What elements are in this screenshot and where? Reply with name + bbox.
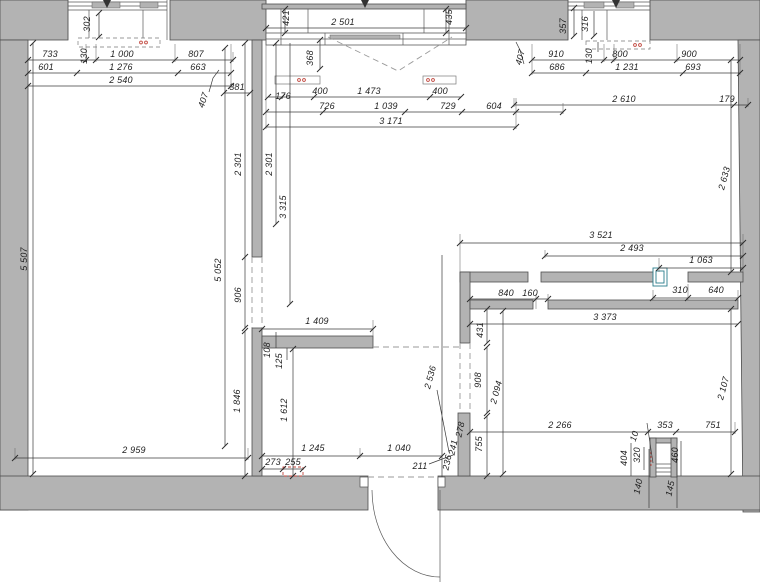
dim-label: 733 [42,49,58,59]
dim-label: 2 094 [488,380,504,406]
dim-label: 906 [233,287,243,303]
dim-label: 273 [264,457,281,467]
dim-label: 751 [705,420,721,430]
dim-label: 400 [312,86,328,96]
partition-horizontal-center [262,336,373,348]
wall-top-right-pier [650,0,760,40]
dim-label: 1 276 [109,62,133,72]
dim-label: 2 301 [233,152,243,177]
dim-label: 729 [440,101,456,111]
dim-label: 130 [584,48,594,64]
radiator-icon [586,41,650,49]
dim-label: 381 [229,82,245,92]
entrance-jamb-right [438,477,445,487]
radiator-icon [423,76,456,84]
dim-label: 1 846 [232,389,242,413]
dim-label: 663 [190,62,206,72]
dim-label: 5 507 [19,246,29,270]
dim-label: 640 [708,285,724,295]
dim-label: 357 [558,17,568,33]
dim-label: 807 [188,49,204,59]
dim-label: 236 [440,454,453,472]
partition-corridor-c [688,272,743,282]
dim-label: 601 [38,62,54,72]
dimension-labels: 3027331301 0008076011 2766632 5404073814… [19,8,735,497]
dim-label: 431 [475,322,485,338]
partition-vertical-lower [252,328,262,476]
dim-label: 407 [513,48,527,66]
dim-label: 5 052 [213,258,223,282]
wall-top-pier-3 [466,0,568,40]
dim-label: 176 [275,91,291,101]
dim-label: 241 [446,439,459,457]
dim-label: 320 [632,447,642,463]
wall-top-left-pier [0,0,68,40]
floor-plan-canvas: 3027331301 0008076011 2766632 5404073814… [0,0,760,582]
wall-left [0,40,28,510]
dim-label: 2 536 [422,365,438,391]
wall-bottom-right [438,476,760,510]
dim-label: 310 [672,285,688,295]
balcony-sliding-panel [330,35,400,39]
partition-corridor-b [541,272,655,282]
dim-label: 10 [628,430,641,443]
balcony [262,0,466,45]
dim-label: 686 [549,62,565,72]
dim-label: 108 [262,342,272,358]
dim-label: 800 [612,49,628,59]
entrance-door [372,490,440,582]
partition-left-upper [460,272,470,343]
dim-label: 435 [444,8,454,24]
dim-label: 125 [274,352,284,368]
floor-plan-drawing: 3027331301 0008076011 2766632 5404073814… [0,0,760,582]
dim-label: 604 [486,101,502,111]
dim-label: 3 521 [589,230,613,240]
dim-label: 255 [284,457,301,467]
door-jamb-detail [653,268,667,286]
dim-label: 2 301 [264,152,274,177]
dim-label: 1 063 [689,255,713,265]
dim-label: 3 171 [379,116,403,126]
dim-label: 2 107 [715,375,731,402]
partition-room-a [470,300,533,309]
dim-label: 2 501 [330,17,355,27]
dim-label: 2 959 [121,445,146,455]
dim-label: 211 [412,461,428,471]
dim-label: 910 [548,49,564,59]
dim-label: 179 [719,94,735,104]
dim-label: 726 [319,101,335,111]
dim-label: 407 [196,90,211,109]
dim-label: 1 473 [357,86,381,96]
dim-label: 2 266 [547,420,572,430]
dim-label: 900 [681,49,697,59]
dim-label: 1 231 [615,62,639,72]
wall-bottom-left [0,476,368,510]
dim-label: 368 [305,50,315,66]
dim-label: 302 [82,16,92,32]
dim-label: 2 633 [716,166,732,192]
dim-label: 160 [522,288,538,298]
dim-label: 1 612 [279,398,289,422]
dim-label: 840 [498,288,514,298]
dim-label: 316 [580,16,590,32]
dim-label: 2 610 [611,94,636,104]
partition-vertical-upper [252,40,262,257]
door-swing-arc [372,490,440,577]
dim-label: 130 [79,48,89,64]
dim-label: 421 [281,10,291,26]
dim-label: 1 245 [301,443,325,453]
dim-label: 3 315 [278,194,288,218]
dim-label: 1 000 [110,49,134,59]
dim-label: 404 [619,450,629,466]
dim-label: 1 039 [374,101,398,111]
entrance-jamb-left [360,477,368,487]
dim-label: 1 040 [387,443,411,453]
dim-label: 460 [670,447,680,463]
dim-label: 2 540 [108,75,133,85]
dim-label: 400 [432,86,448,96]
wall-top-pier-2 [170,0,266,40]
dim-label: 2 493 [619,243,644,253]
partition-room-b [548,300,738,309]
dim-label: 1 409 [305,316,329,326]
dim-label: 3 373 [593,312,617,322]
dim-label: 693 [685,62,701,72]
dim-label: 755 [474,435,484,451]
dim-label: 908 [473,372,483,388]
dim-label: 353 [657,420,673,430]
